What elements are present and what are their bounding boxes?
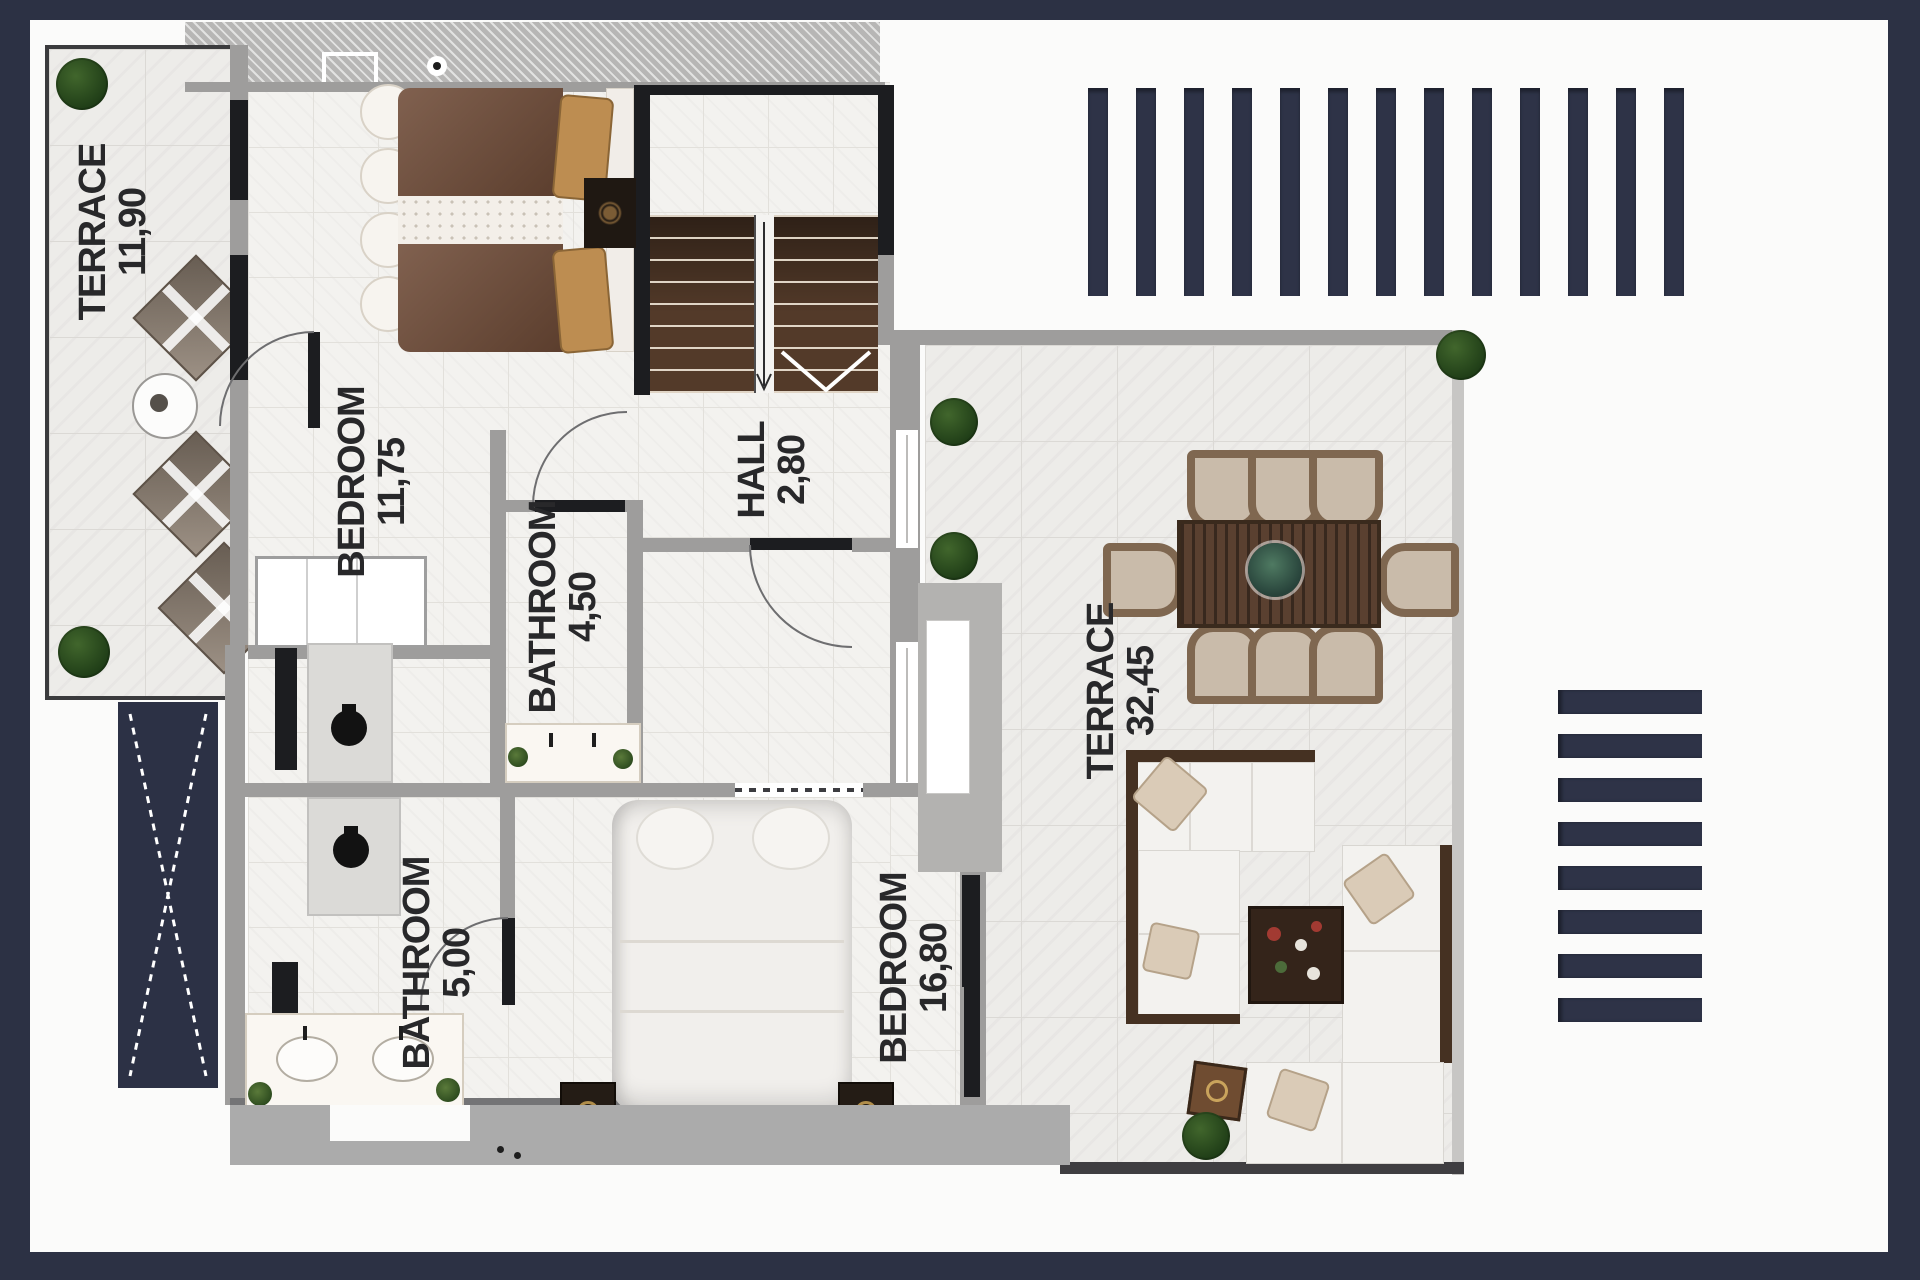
pergola-stripes-right bbox=[1558, 690, 1702, 1030]
plant-bush-icon bbox=[56, 58, 108, 110]
plant-small-icon bbox=[436, 1078, 460, 1102]
bed-fold bbox=[620, 940, 844, 943]
toilet-icon bbox=[331, 710, 367, 746]
entrance-canopy bbox=[185, 22, 880, 84]
wall bbox=[625, 500, 643, 512]
window-icon bbox=[894, 428, 920, 550]
bed-runner bbox=[398, 196, 563, 244]
flower-icon bbox=[1295, 939, 1307, 951]
plant-bush-icon bbox=[930, 398, 978, 446]
pergola-beam-x bbox=[118, 702, 218, 1088]
side-table-round-icon bbox=[132, 373, 198, 439]
double-bed-icon bbox=[398, 244, 563, 352]
room-area: 32,45 bbox=[1120, 646, 1162, 736]
plant-small-icon bbox=[248, 1082, 272, 1106]
flower-icon bbox=[1275, 961, 1287, 973]
room-name: TERRACE bbox=[72, 144, 114, 321]
wall bbox=[225, 645, 245, 1105]
room-label-bathroom-1: BATHROOM 4,50 bbox=[523, 501, 603, 714]
stair-flight-right bbox=[774, 215, 878, 393]
room-area: 11,90 bbox=[112, 188, 154, 276]
room-name: BATHROOM bbox=[522, 501, 564, 714]
sofa-frame bbox=[1440, 845, 1452, 1063]
outdoor-counter-top bbox=[926, 620, 970, 794]
wall bbox=[890, 330, 1465, 345]
room-area: 16,80 bbox=[913, 923, 955, 1013]
faucet-icon bbox=[549, 733, 553, 747]
plant-small-icon bbox=[508, 747, 528, 767]
flower-icon bbox=[1311, 921, 1322, 932]
plant-bush-icon bbox=[1436, 330, 1486, 380]
stair-wall bbox=[634, 85, 880, 95]
stair-flight-left bbox=[650, 215, 754, 393]
room-area: 5,00 bbox=[436, 928, 478, 998]
pillow-icon bbox=[636, 806, 714, 870]
terrace-edge bbox=[1452, 330, 1464, 1175]
door-leaf bbox=[502, 918, 515, 1005]
pergola-stripes-top bbox=[1088, 88, 1714, 296]
wall bbox=[640, 538, 750, 552]
room-label-terrace-small: TERRACE 11,90 bbox=[73, 144, 153, 321]
flower-icon bbox=[1307, 967, 1320, 980]
window-icon bbox=[894, 640, 920, 790]
toilet-icon bbox=[333, 832, 369, 868]
stair-wall bbox=[878, 85, 894, 255]
table-centerpiece-icon bbox=[1248, 543, 1302, 597]
stair-wall bbox=[634, 85, 650, 395]
wall bbox=[852, 538, 890, 552]
plant-round-icon bbox=[1182, 1112, 1230, 1160]
pillow-icon bbox=[552, 246, 615, 354]
marker-dot bbox=[514, 1152, 521, 1159]
wall bbox=[275, 647, 297, 770]
door-leaf bbox=[750, 538, 852, 550]
double-bed-icon bbox=[398, 88, 563, 196]
wall bbox=[230, 100, 248, 200]
room-name: BATHROOM bbox=[396, 857, 438, 1070]
flower-icon bbox=[1267, 927, 1281, 941]
pillow-icon bbox=[752, 806, 830, 870]
faucet-icon bbox=[592, 733, 596, 747]
floor-plan-canvas: TERRACE 11,90 BEDROOM 11,75 HALL 2,80 BA… bbox=[0, 0, 1920, 1280]
plant-bush-icon bbox=[930, 532, 978, 580]
dining-chair-icon bbox=[1379, 543, 1459, 617]
room-area: 4,50 bbox=[562, 572, 604, 642]
side-table-icon bbox=[1187, 1061, 1248, 1122]
walkway-notch bbox=[330, 1105, 470, 1141]
bedside-rug-icon bbox=[584, 178, 636, 248]
window-strip-icon bbox=[735, 783, 863, 797]
room-label-bedroom-1: BEDROOM 11,75 bbox=[332, 386, 412, 577]
plant-small-icon bbox=[613, 749, 633, 769]
wall bbox=[964, 985, 980, 1097]
room-area: 11,75 bbox=[371, 438, 413, 526]
room-name: BEDROOM bbox=[331, 386, 373, 577]
wall bbox=[240, 783, 640, 797]
pillow-icon bbox=[1141, 921, 1200, 980]
faucet-icon bbox=[303, 1026, 307, 1040]
canopy-lamp-icon bbox=[427, 56, 447, 76]
room-name: BEDROOM bbox=[873, 872, 915, 1063]
room-name: TERRACE bbox=[1080, 603, 1122, 780]
sink-icon bbox=[276, 1036, 338, 1082]
wall bbox=[490, 430, 506, 785]
dining-chair-icon bbox=[1309, 624, 1383, 704]
room-label-hall: HALL 2,80 bbox=[732, 421, 812, 518]
room-area: 2,80 bbox=[771, 435, 813, 505]
wall bbox=[230, 255, 248, 380]
room-name: HALL bbox=[731, 421, 773, 518]
bed-fold bbox=[620, 1010, 844, 1013]
coffee-table-icon bbox=[1248, 906, 1344, 1004]
sofa-frame bbox=[1126, 1014, 1240, 1024]
wall bbox=[962, 875, 980, 987]
room-label-bedroom-2: BEDROOM 16,80 bbox=[874, 872, 954, 1063]
room-label-bathroom-2: BATHROOM 5,00 bbox=[397, 857, 477, 1070]
marker-dot bbox=[497, 1146, 504, 1153]
wall bbox=[500, 797, 515, 918]
plant-bush-icon bbox=[58, 626, 110, 678]
door-leaf bbox=[308, 332, 320, 428]
dining-chair-icon bbox=[1309, 450, 1383, 530]
room-label-terrace-large: TERRACE 32,45 bbox=[1081, 603, 1161, 780]
